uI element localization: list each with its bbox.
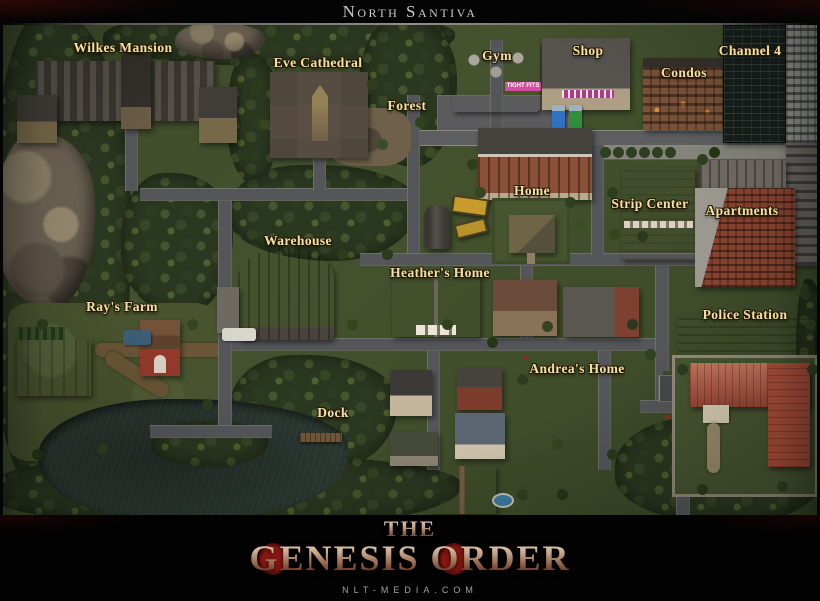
logo-genesis-order: Genesis Order — [249, 539, 570, 577]
map-label-gym[interactable]: Gym — [482, 48, 512, 64]
map-label-forest[interactable]: Forest — [388, 98, 427, 114]
footer-bar: The Genesis Order nlt-media.com — [0, 515, 820, 601]
map-label-wilkes-mansion[interactable]: Wilkes Mansion — [74, 40, 173, 56]
world-map[interactable]: TIGHT FITS — [3, 25, 817, 515]
region-title: North Santiva — [0, 0, 820, 24]
map-label-ray-s-farm[interactable]: Ray's Farm — [86, 299, 158, 315]
map-label-condos[interactable]: Condos — [661, 65, 707, 81]
map-labels-layer: Wilkes MansionEve CathedralForestGymShop… — [3, 25, 817, 515]
map-label-apartments[interactable]: Apartments — [706, 203, 779, 219]
map-label-home[interactable]: Home — [514, 183, 550, 199]
map-label-andrea-s-home[interactable]: Andrea's Home — [529, 361, 624, 377]
map-label-strip-center[interactable]: Strip Center — [611, 196, 688, 212]
map-label-eve-cathedral[interactable]: Eve Cathedral — [274, 55, 363, 71]
game-logo: The Genesis Order — [0, 517, 820, 579]
map-label-shop[interactable]: Shop — [573, 43, 604, 59]
title-bar: North Santiva — [0, 0, 820, 25]
website-url: nlt-media.com — [0, 585, 820, 595]
map-label-heather-s-home[interactable]: Heather's Home — [390, 265, 490, 281]
map-label-dock[interactable]: Dock — [317, 405, 349, 421]
logo-main-wrap: Genesis Order — [0, 539, 820, 579]
map-label-channel-4[interactable]: Channel 4 — [719, 43, 782, 59]
screenshot-frame: TIGHT FITS — [0, 0, 820, 601]
map-label-warehouse[interactable]: Warehouse — [264, 233, 332, 249]
map-label-police-station[interactable]: Police Station — [703, 307, 788, 323]
